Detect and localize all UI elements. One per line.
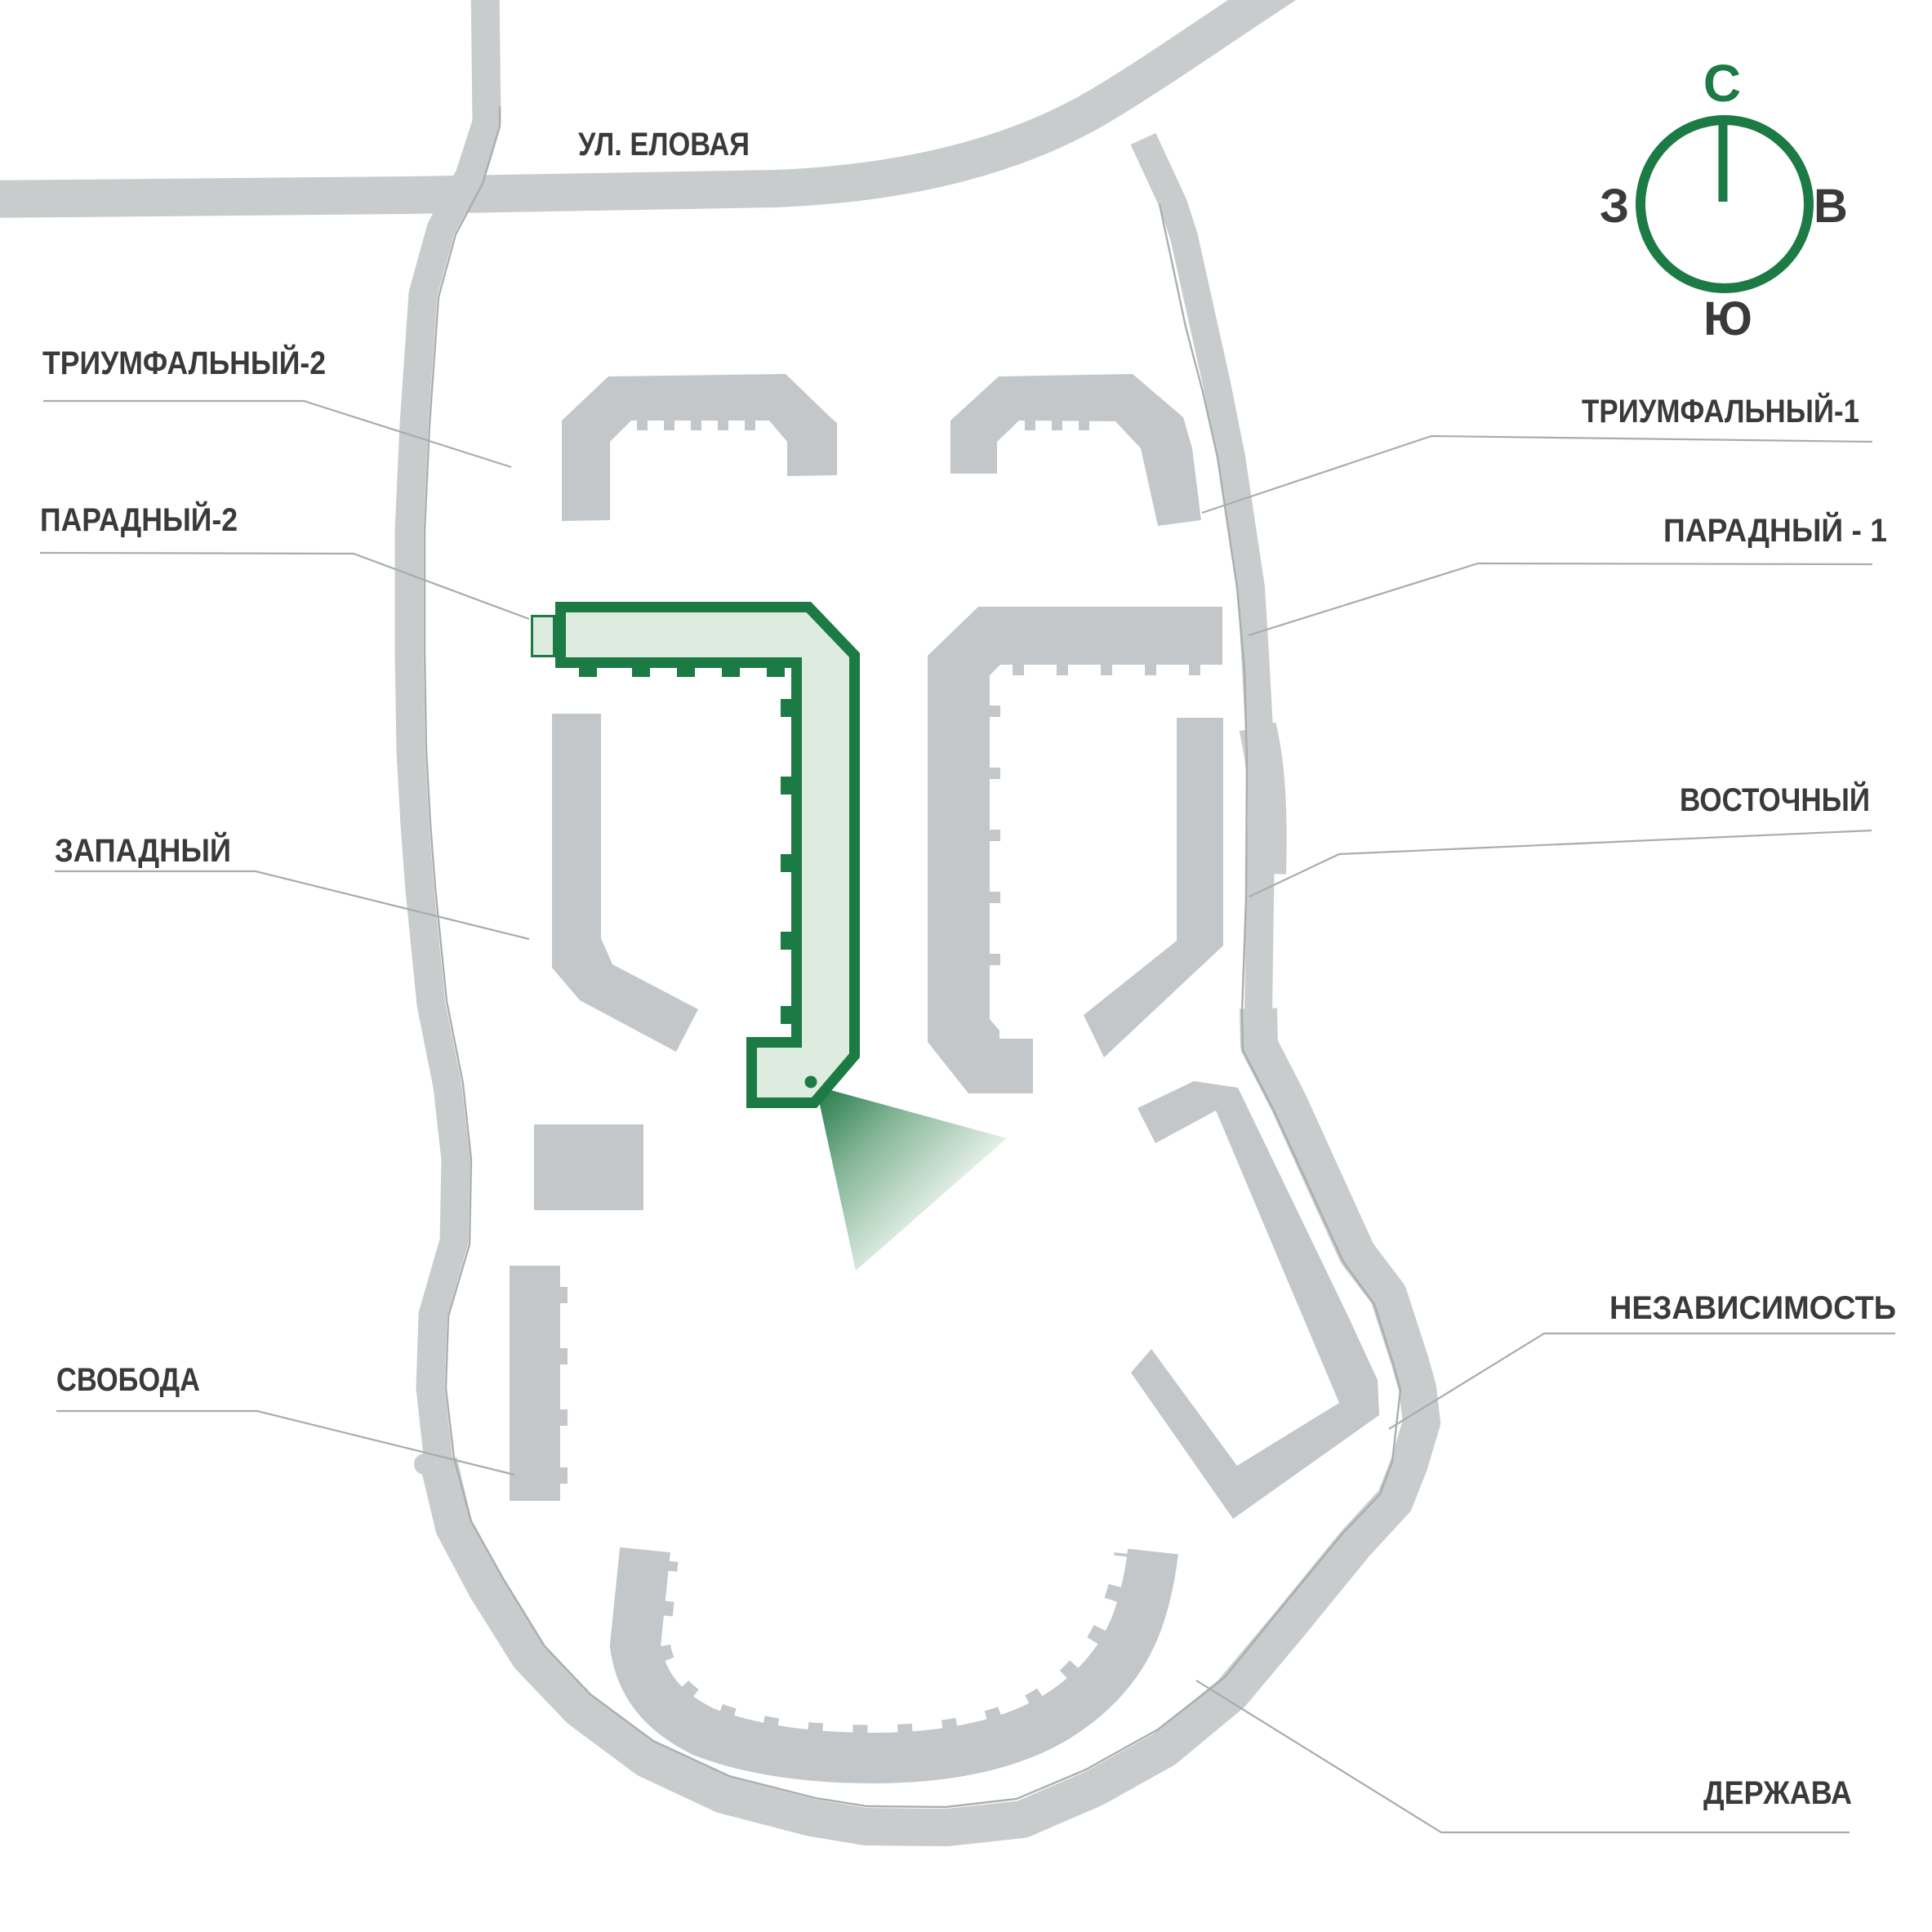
svg-text:УЛ. ЕЛОВАЯ: УЛ. ЕЛОВАЯ: [578, 127, 750, 162]
svg-text:ЗАПАДНЫЙ: ЗАПАДНЫЙ: [55, 831, 231, 869]
svg-text:ТРИУМФАЛЬНЫЙ-2: ТРИУМФАЛЬНЫЙ-2: [42, 344, 326, 381]
svg-text:ТРИУМФАЛЬНЫЙ-1: ТРИУМФАЛЬНЫЙ-1: [1582, 392, 1859, 430]
svg-text:ПАРАДНЫЙ - 1: ПАРАДНЫЙ - 1: [1663, 511, 1887, 549]
svg-text:НЕЗАВИСИМОСТЬ: НЕЗАВИСИМОСТЬ: [1609, 1290, 1896, 1326]
svg-text:ВОСТОЧНЫЙ: ВОСТОЧНЫЙ: [1680, 781, 1870, 818]
svg-text:С: С: [1703, 54, 1741, 113]
svg-text:Ю: Ю: [1703, 292, 1752, 345]
svg-text:ДЕРЖАВА: ДЕРЖАВА: [1703, 1775, 1852, 1811]
svg-text:В: В: [1814, 180, 1848, 233]
svg-text:З: З: [1600, 180, 1629, 233]
svg-text:СВОБОДА: СВОБОДА: [56, 1362, 200, 1398]
svg-text:ПАРАДНЫЙ-2: ПАРАДНЫЙ-2: [40, 501, 238, 538]
